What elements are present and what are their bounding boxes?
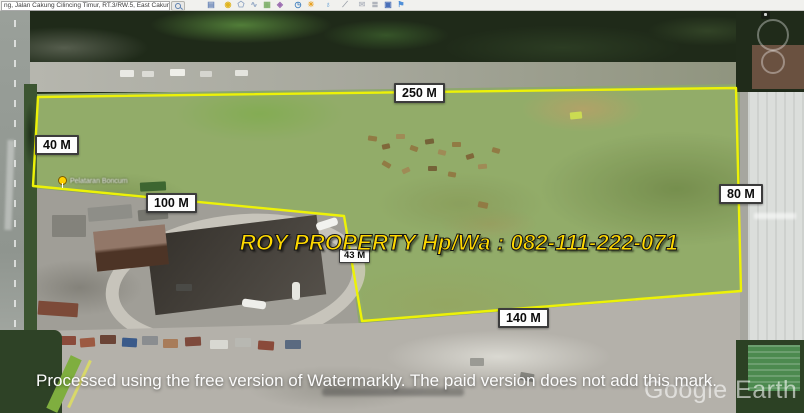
ruler-icon[interactable]: ⟋ xyxy=(339,0,351,10)
measure-label-left: 40 M xyxy=(35,135,79,155)
property-boundary-polygon[interactable] xyxy=(0,10,804,413)
add-image-overlay-icon[interactable]: ▦ xyxy=(261,0,273,10)
print-icon[interactable]: ≣ xyxy=(369,0,381,10)
measure-label-bottom: 140 M xyxy=(498,308,549,328)
search-input[interactable]: ng, Jalan Cakung Cilincing Timur, RT.3/R… xyxy=(1,1,170,11)
measure-label-inner: 100 M xyxy=(146,193,197,213)
add-path-icon[interactable]: ∿ xyxy=(248,0,260,10)
add-placemark-icon[interactable]: ◉ xyxy=(222,0,234,10)
measure-label-right: 80 M xyxy=(719,184,763,204)
search-button[interactable] xyxy=(171,1,185,11)
measure-label-top: 250 M xyxy=(394,83,445,103)
sunlight-icon[interactable]: ☀ xyxy=(305,0,317,10)
toolbar: ng, Jalan Cakung Cilincing Timur, RT.3/R… xyxy=(0,0,804,11)
move-joystick[interactable] xyxy=(761,50,785,74)
view-in-maps-icon[interactable]: ⚑ xyxy=(395,0,407,10)
watermarkly-notice: Processed using the free version of Wate… xyxy=(36,371,776,391)
satellite-map-viewport[interactable]: Pelataran Boncum 250 M 40 M 100 M 43 M 1… xyxy=(0,10,804,413)
save-image-icon[interactable]: ▣ xyxy=(382,0,394,10)
property-ad-watermark: ROY PROPERTY Hp/Wa : 082-111-222-071 xyxy=(240,230,596,256)
planets-icon[interactable]: ♁ xyxy=(322,0,334,10)
google-earth-window: ng, Jalan Cakung Cilincing Timur, RT.3/R… xyxy=(0,0,804,413)
historical-imagery-icon[interactable]: ◷ xyxy=(292,0,304,10)
email-icon[interactable]: ✉ xyxy=(356,0,368,10)
record-tour-icon[interactable]: ◈ xyxy=(274,0,286,10)
placemark-label: Pelataran Boncum xyxy=(70,178,128,185)
hide-sidebar-icon[interactable]: ▤ xyxy=(205,0,217,10)
look-joystick[interactable] xyxy=(757,19,789,51)
add-polygon-icon[interactable]: ⬠ xyxy=(235,0,247,10)
nav-control-icon[interactable] xyxy=(761,11,770,19)
